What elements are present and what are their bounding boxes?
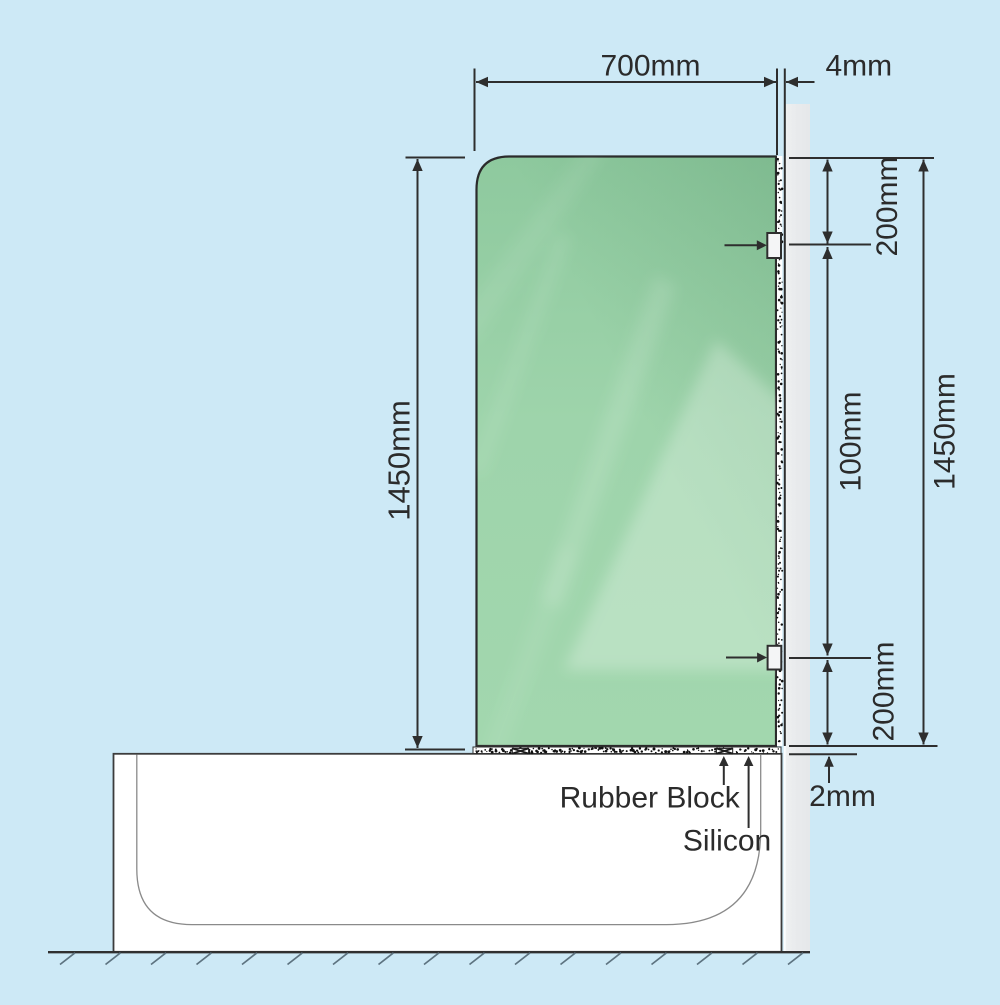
- svg-text:1450mm: 1450mm: [929, 373, 962, 490]
- svg-text:200mm: 200mm: [871, 156, 904, 256]
- svg-text:Rubber Block: Rubber Block: [560, 782, 741, 815]
- svg-text:100mm: 100mm: [835, 391, 868, 491]
- svg-text:4mm: 4mm: [825, 50, 892, 83]
- svg-text:1450mm: 1450mm: [382, 400, 417, 521]
- svg-text:200mm: 200mm: [868, 641, 901, 741]
- svg-text:700mm: 700mm: [600, 50, 700, 83]
- svg-text:Silicon: Silicon: [683, 825, 771, 858]
- svg-text:2mm: 2mm: [809, 780, 876, 813]
